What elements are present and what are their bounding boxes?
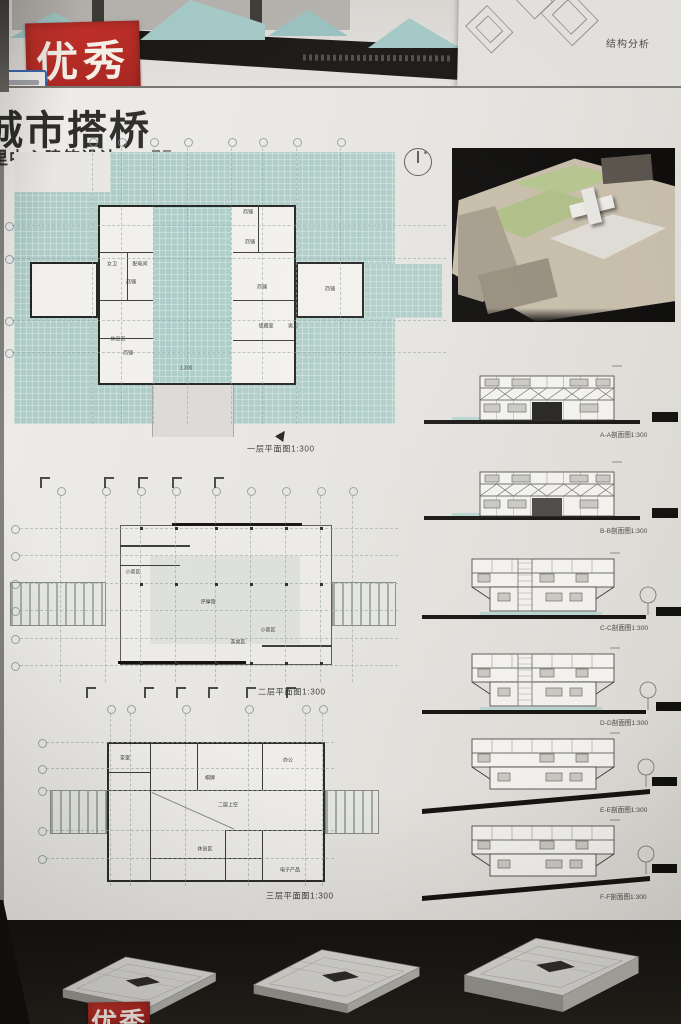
axon-floor-plate [242,940,437,1024]
photo-edge-top-left [0,0,9,92]
axon-floor-plate [452,928,657,1024]
photo-edge-left [0,150,4,910]
poster-photo: 结构分析 优秀 城市搭桥 里中心建筑设计 [0,0,681,1024]
award-stamp-bottom: 优秀 [88,1001,150,1024]
axon-layer [0,0,681,1024]
award-stamp-bottom-text: 优秀 [91,1002,148,1024]
